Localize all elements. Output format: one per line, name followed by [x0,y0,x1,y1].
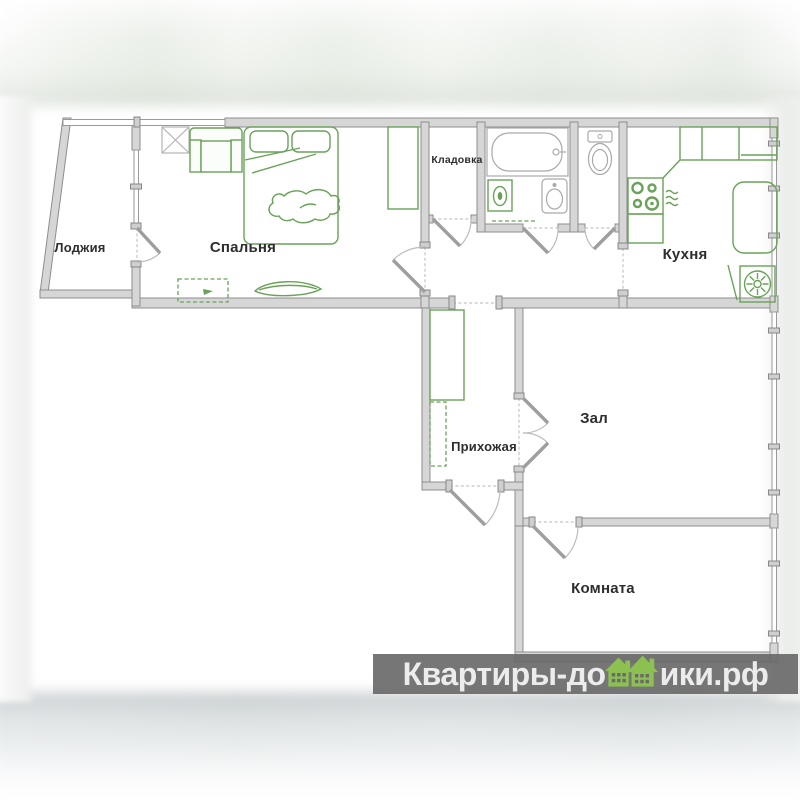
room-label-hallway: Прихожая [442,440,526,454]
right-wall-living-junction [770,296,778,312]
hallway-left-wall [422,308,430,490]
bathroom-door-icon [523,228,558,253]
kitchen-table-icon [733,182,777,253]
door-jamb [618,290,628,296]
room-left-wall [515,526,523,662]
stove-icon [628,178,663,214]
loggia-slanted-wall [40,118,71,293]
loggia-door-icon [137,228,160,262]
hallway-wardrobe-icon [430,310,464,400]
room-window [772,528,777,643]
room-label-loggia: Лоджия [42,241,118,255]
entrance-door-icon [450,490,500,525]
watermark-text-after: ики.рф [660,656,769,693]
toilet-bottom-wall-right [615,224,619,232]
walls [40,118,778,662]
corner-counter-icon [663,160,680,178]
window-tick [769,444,780,449]
kitchen-counter-icon [628,214,663,243]
low-shelf-icon [255,282,321,296]
room-label-living: Зал [562,411,626,427]
room-label-kitchen: Кухня [653,247,717,263]
bathroom-sink-icon [542,179,567,213]
toilet-bottom-wall-left [578,224,585,232]
vent-shaft-icon [162,127,189,153]
steam-icon [666,191,678,206]
bathroom-bottom-wall-left [485,224,523,232]
toilet-door-icon [585,228,615,249]
window-tick [131,184,142,189]
toilet-icon [588,131,612,175]
window-tick [769,233,780,238]
room-door-icon [533,526,578,558]
living-left-wall-top [515,308,523,398]
living-double-door-icon [523,398,548,468]
room-label-room: Комната [551,581,655,597]
kitchen-cabinets-icon [663,127,777,178]
top-wall [225,118,778,127]
window-tick [769,490,780,495]
window-cap [134,117,140,127]
houses-logo-icon [605,654,661,694]
bottom-strip-wall-left [132,298,453,308]
window-tick [769,328,780,333]
window-tick [769,141,780,146]
kitchen-sink-icon [728,265,775,302]
bathroom-right-wall [570,122,578,232]
room-label-bedroom: Спальня [191,240,295,256]
door-jamb [618,243,628,249]
living-left-wall-bottom [515,468,523,526]
loggia-bottom-wall [40,290,140,298]
door-jamb [496,296,502,309]
bedroom-furniture [162,127,418,302]
watermark-text-before: Квартиры-до [403,656,606,693]
bedroom-door-icon [393,247,425,292]
room-divider-wall-right [578,518,778,526]
bathtub-icon [487,128,568,176]
door-jamb [449,296,455,309]
armchair-icon [190,128,242,172]
kitchen-furniture [628,127,777,302]
storage-bottom-wall-left [429,215,433,223]
room-label-storage: Кладовка [426,155,488,166]
window-tick [769,561,780,566]
double-bed-icon [244,127,339,244]
bedroom-right-wall [421,122,429,247]
bottom-strip-wall-right [498,298,778,308]
bedroom-top-window [63,120,225,126]
bathroom-fixtures [487,128,612,221]
washing-machine-icon [488,180,512,211]
window-tick [769,374,780,379]
bedroom-wardrobe-icon [388,127,418,209]
storage-door-icon [433,219,471,246]
kitchen-left-wall [619,122,627,248]
door-jamb [131,223,141,229]
doors [137,219,615,558]
storage-bottom-wall-right [471,215,477,223]
loggia-divider-bottom [132,263,140,306]
door-jamb [498,480,504,492]
kitchen-window [772,138,777,296]
door-jamb [576,517,582,527]
watermark-bar: Квартиры-доики.рф [373,654,798,694]
bathroom-bottom-wall-right [558,224,570,232]
door-openings [131,219,628,527]
shoe-rack-icon [430,402,446,466]
screenshot-stage: Лоджия Спальня Кладовка Кухня Прихожая З… [0,0,800,800]
bathroom-left-wall [477,122,485,232]
right-wall-room-junction [770,514,778,528]
living-window [772,312,777,514]
window-tick [769,186,780,191]
door-jamb [514,393,524,399]
window-tick [769,631,780,636]
